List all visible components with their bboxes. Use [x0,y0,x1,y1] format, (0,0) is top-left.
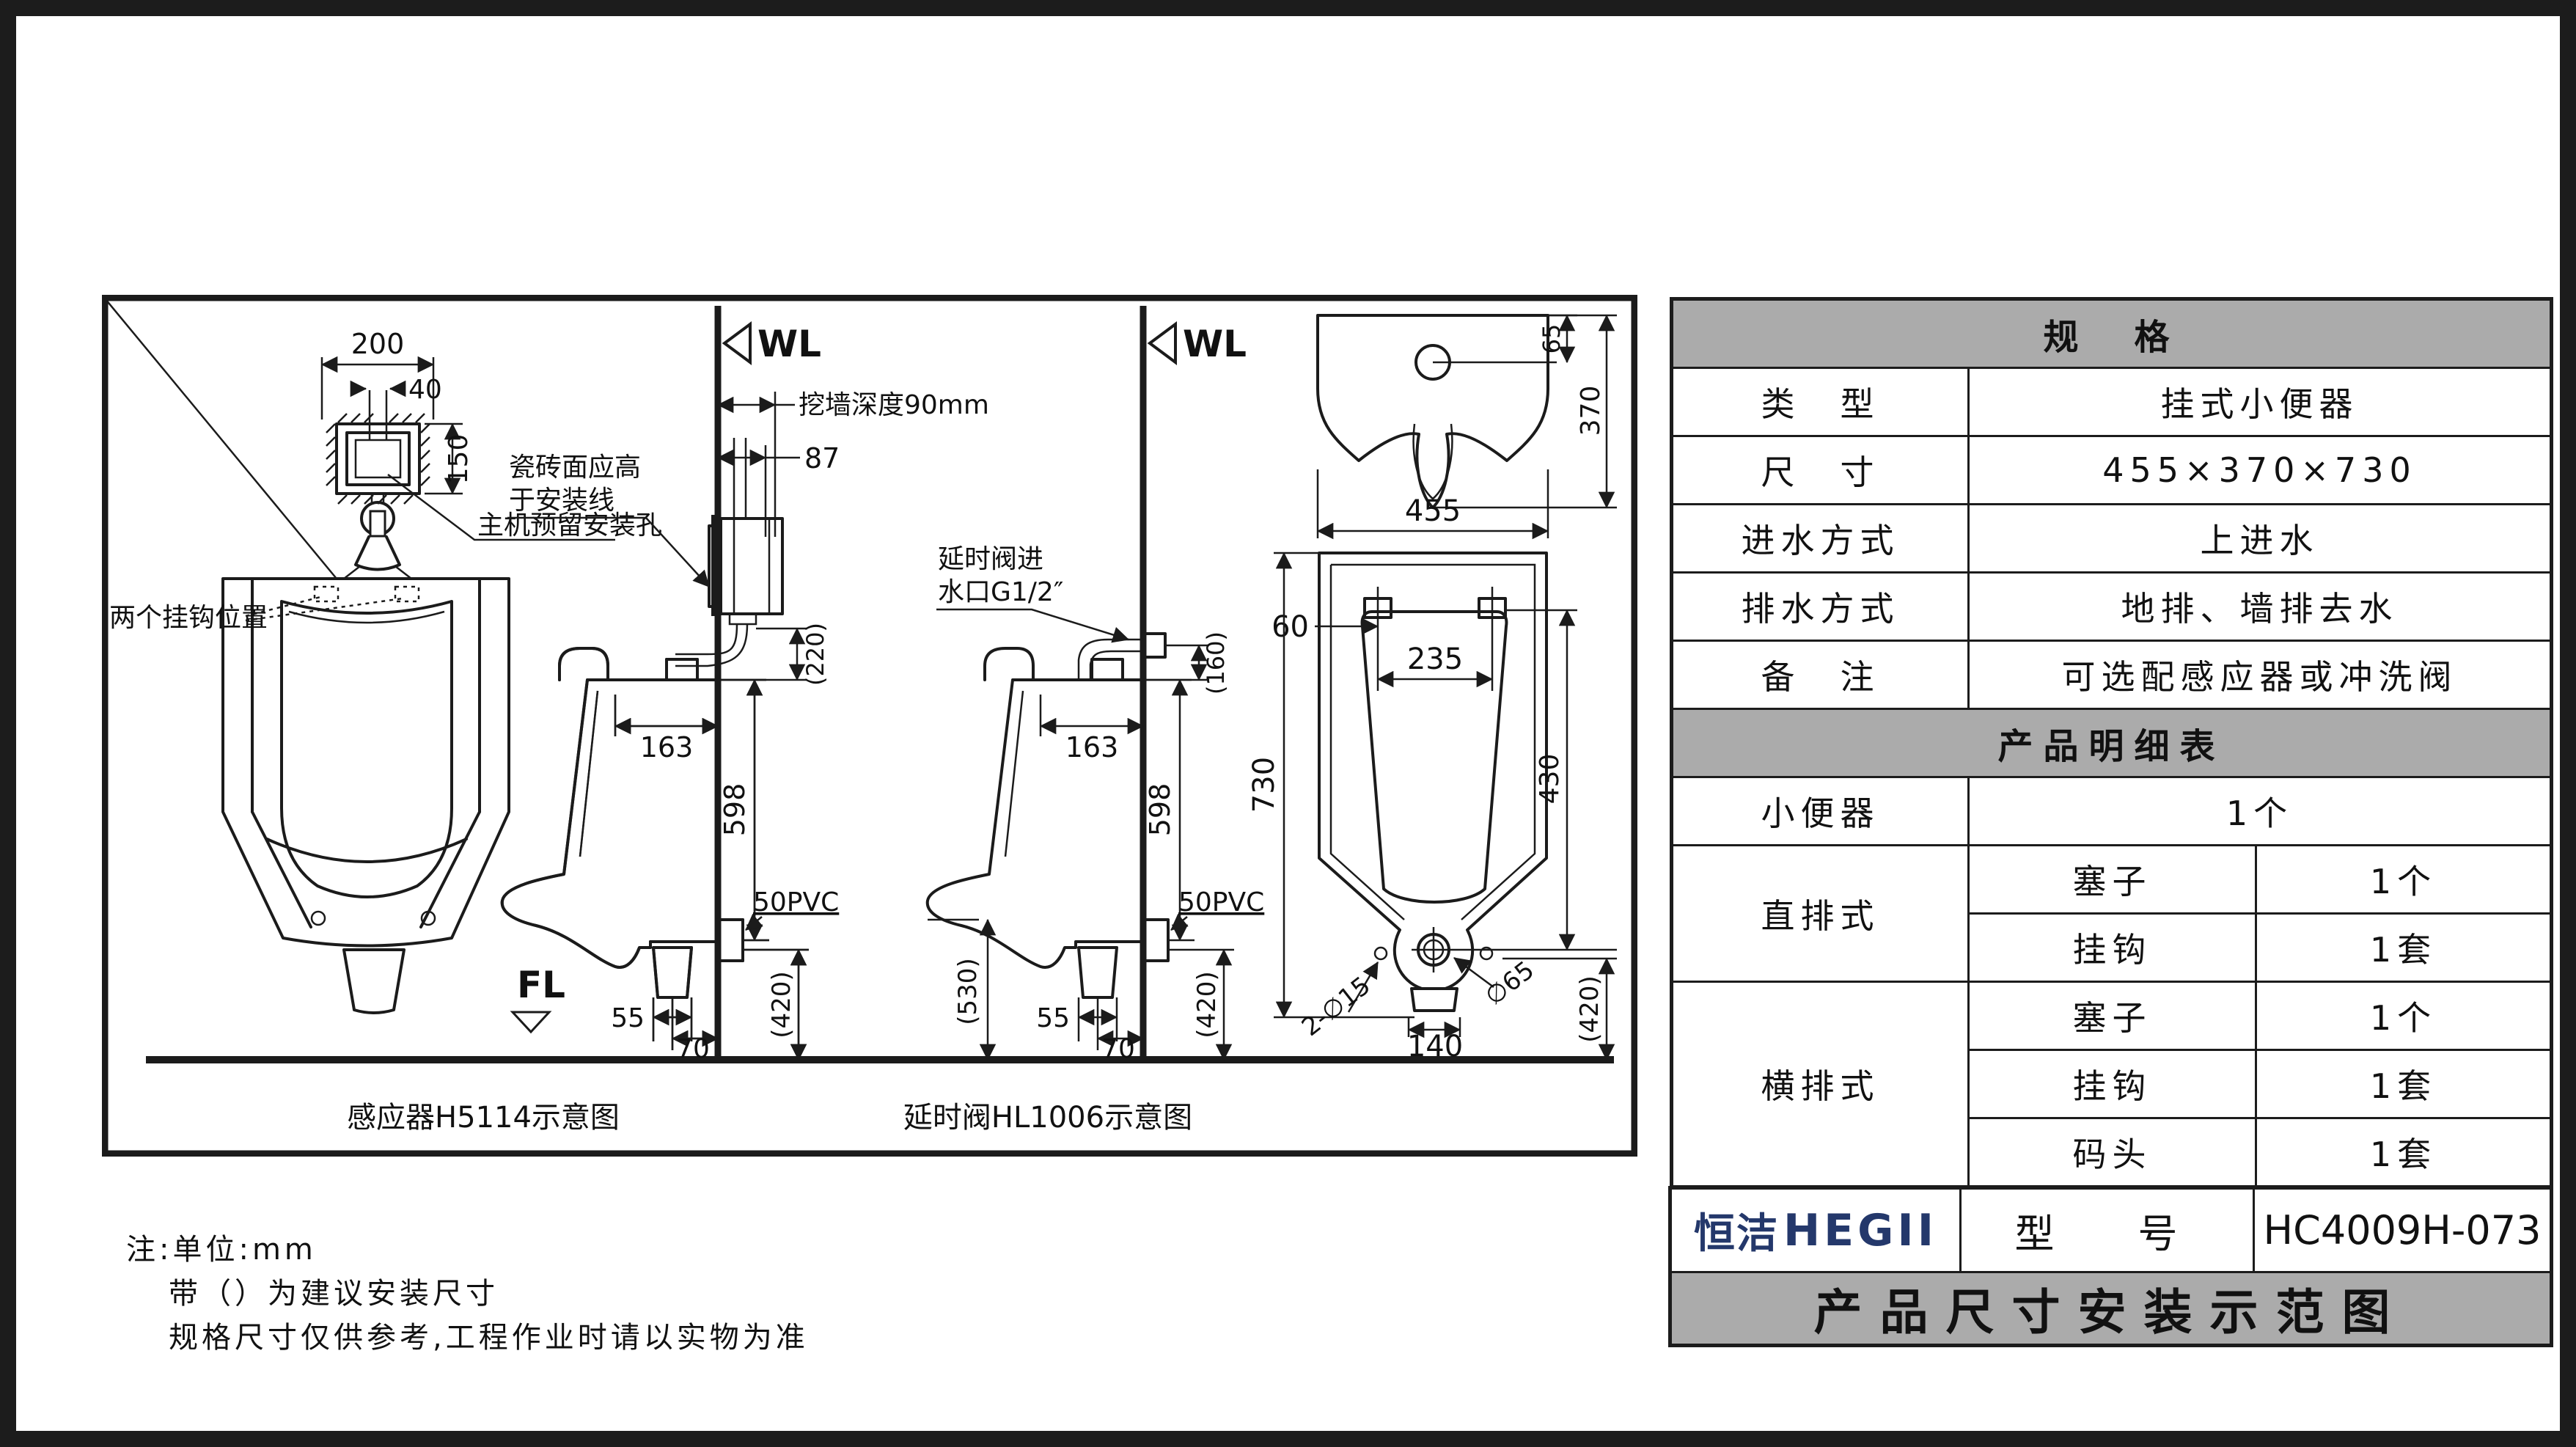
dim-420-front: (420) [1575,975,1604,1042]
dim-140: 140 [1407,1030,1463,1063]
spec-label-size: 尺 寸 [1672,436,1969,505]
note-line2: 带（）为建议安装尺寸 [169,1272,809,1316]
pvc-label-sensor: 50PVC [753,887,839,917]
spec-label-inlet: 进水方式 [1672,505,1969,573]
fl-marker-label: FL [517,964,565,1006]
installation-sheet: 200 40 150 主机预留安装孔 [0,0,2576,1447]
front-elevation: 60 235 730 430 (420) 2-∅1 [1247,553,1617,1063]
spec-value-type: 挂式小便器 [1969,368,2552,436]
mount-hole-detail [326,390,430,504]
model-label: 型 号 [1962,1190,2255,1271]
detail-title: 产品明细表 [1672,709,2552,777]
spec-label-drain: 排水方式 [1672,573,1969,641]
detail-qty: 1套 [2256,1118,2552,1187]
dim-370: 370 [1576,386,1606,436]
detail-item: 挂钩 [1969,1050,2256,1118]
detail-item: 塞子 [1969,982,2256,1050]
top-view: 65 370 455 [1318,315,1617,538]
inlet-label-line1: 延时阀进 [938,544,1043,574]
fl-marker-triangle [513,1012,549,1032]
dim-d65: ∅65 [1480,956,1540,1011]
model-value: HC4009H-073 [2255,1190,2550,1271]
dim-70-sensor: 70 [676,1034,710,1064]
dim-200: 200 [351,328,405,360]
panel-frame [105,298,1634,1154]
dim-40: 40 [408,375,442,405]
dim-730: 730 [1247,757,1281,813]
wall-depth-label: 挖墙深度90mm [799,390,989,420]
pvc-label-delay: 50PVC [1178,887,1264,917]
dim-598-sensor: 598 [719,783,751,837]
dim-598-delay: 598 [1144,783,1176,837]
tile-note-line1: 瓷砖面应高 [509,453,641,483]
sheet-title: 产品尺寸安装示范图 [1672,1271,2550,1344]
brand-logo: 恒洁 HEGII [1672,1190,1962,1271]
dim-87: 87 [804,442,840,475]
dim-163-delay: 163 [1065,731,1119,763]
delay-valve-side-view: WL 延时阀进 水口G1/2″ (160) (530) 163 598 50PV… [903,306,1264,1135]
tile-note-line2: 于安装线 [509,486,614,516]
dim-70-delay: 70 [1101,1034,1135,1064]
brand-logo-cn: 恒洁 [1694,1201,1779,1260]
dim-150: 150 [444,434,474,485]
wl-marker-delay: WL [1183,323,1247,365]
spec-value-remark: 可选配感应器或冲洗阀 [1969,641,2552,709]
detail-qty: 1个 [2256,846,2552,914]
dim-160: (160) [1202,631,1230,695]
detail-urinal-label: 小便器 [1672,777,1969,846]
dim-530: (530) [953,958,983,1025]
sensor-side-view: WL 挖墙深度90mm 87 瓷砖面应高 [347,306,989,1135]
product-views: 65 370 455 [1247,315,1617,1063]
detail-qty: 1套 [2256,1050,2552,1118]
detail-item: 塞子 [1969,846,2256,914]
spec-value-inlet: 上进水 [1969,505,2552,573]
dim-55-delay: 55 [1036,1003,1070,1033]
detail-item: 码头 [1969,1118,2256,1187]
urinal-front-body [223,579,509,1013]
wl-marker-sensor: WL [757,323,821,365]
detail-item: 挂钩 [1969,914,2256,982]
dim-455: 455 [1405,494,1461,528]
dim-430: 430 [1535,754,1565,805]
hook-position-left [315,587,338,601]
dim-220: (220) [801,623,829,686]
dim-65: 65 [1538,324,1566,354]
note-line3: 规格尺寸仅供参考,工程作业时请以实物为准 [169,1316,809,1360]
dim-60: 60 [1272,610,1309,644]
hooks-callout: 两个挂钩位置 [109,603,268,633]
detail-urinal-qty: 1个 [1969,777,2552,846]
dim-420-sensor: (420) [767,971,796,1038]
front-view-drawing: 200 40 150 主机预留安装孔 [102,295,662,1032]
spec-table: 规 格 类 型 挂式小便器 尺 寸 455×370×730 进水方式 上进水 排… [1670,297,2553,1189]
spec-title: 规 格 [1672,299,2552,368]
spec-label-remark: 备 注 [1672,641,1969,709]
caption-delay: 延时阀HL1006示意图 [903,1101,1192,1135]
detail-group-vertical: 直排式 [1672,846,1969,982]
brand-logo-en: HEGII [1783,1205,1937,1256]
notes: 注:单位:mm 带（）为建议安装尺寸 规格尺寸仅供参考,工程作业时请以实物为准 [126,1228,809,1360]
dim-2d15: 2-∅15 [1296,971,1376,1042]
dim-235: 235 [1407,642,1463,676]
drawing-panel: 200 40 150 主机预留安装孔 [102,295,1637,1157]
detail-group-horizontal: 横排式 [1672,982,1969,1187]
dim-55-sensor: 55 [611,1003,645,1033]
title-block: 恒洁 HEGII 型 号 HC4009H-073 产品尺寸安装示范图 [1668,1186,2553,1347]
spec-value-drain: 地排、墙排去水 [1969,573,2552,641]
detail-qty: 1个 [2256,982,2552,1050]
spec-label-type: 类 型 [1672,368,1969,436]
dim-163-sensor: 163 [640,731,694,763]
note-line1: 注:单位:mm [126,1228,809,1272]
inlet-label-line2: 水口G1/2″ [938,577,1063,607]
detail-qty: 1套 [2256,914,2552,982]
caption-sensor: 感应器H5114示意图 [347,1101,620,1135]
dim-420-delay: (420) [1192,971,1222,1038]
spec-value-size: 455×370×730 [1969,436,2552,505]
